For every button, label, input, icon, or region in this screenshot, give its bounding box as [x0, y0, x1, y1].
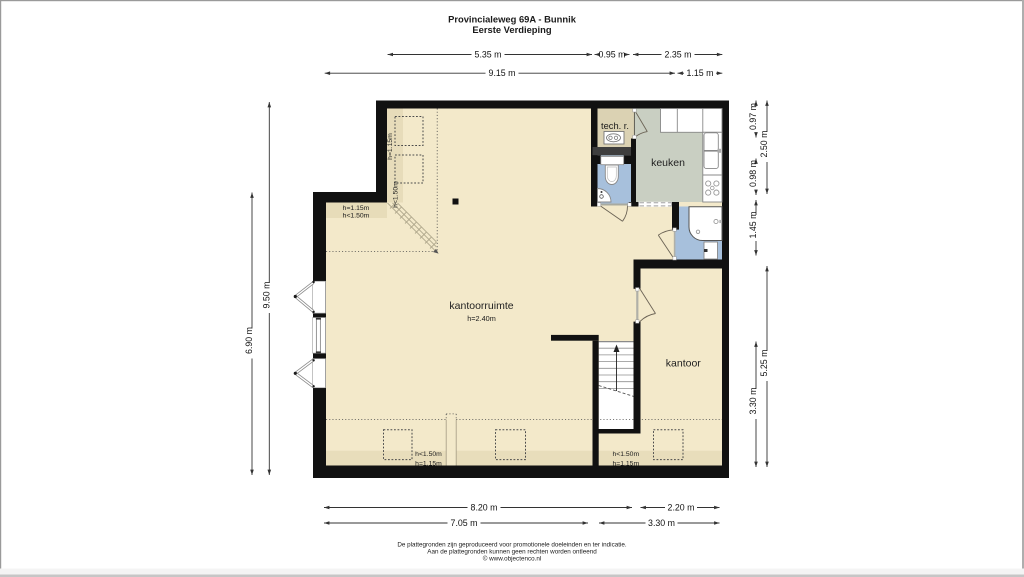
svg-text:h=1.15m: h=1.15m: [415, 460, 442, 467]
svg-text:Aan de plattegronden kunnen ge: Aan de plattegronden kunnen geen rechten…: [427, 549, 597, 556]
svg-text:2.50 m: 2.50 m: [759, 131, 769, 158]
svg-text:h<1.50m: h<1.50m: [612, 451, 639, 458]
svg-text:tech. r.: tech. r.: [601, 121, 629, 131]
svg-text:1.15 m: 1.15 m: [687, 68, 714, 78]
svg-text:h<1.50m: h<1.50m: [415, 451, 442, 458]
svg-text:0.95 m: 0.95 m: [599, 50, 626, 60]
svg-text:3.30 m: 3.30 m: [748, 388, 758, 415]
svg-text:h=2.40m: h=2.40m: [467, 314, 496, 323]
svg-text:0.97 m: 0.97 m: [748, 103, 758, 130]
svg-text:h<1.50m: h<1.50m: [393, 181, 400, 208]
svg-text:h=1.15m: h=1.15m: [343, 205, 370, 212]
svg-text:7.05 m: 7.05 m: [451, 518, 478, 528]
svg-text:2.35 m: 2.35 m: [665, 50, 692, 60]
svg-text:h=1.15m: h=1.15m: [387, 133, 394, 160]
svg-text:9.50 m: 9.50 m: [261, 282, 271, 309]
svg-text:8.20 m: 8.20 m: [471, 503, 498, 513]
svg-text:2.20 m: 2.20 m: [668, 503, 695, 513]
svg-text:3.30 m: 3.30 m: [648, 518, 675, 528]
svg-text:5.25 m: 5.25 m: [759, 350, 769, 377]
svg-text:Eerste Verdieping: Eerste Verdieping: [472, 24, 551, 35]
svg-text:© www.objectenco.nl: © www.objectenco.nl: [483, 555, 542, 563]
svg-text:keuken: keuken: [651, 157, 685, 169]
svg-text:h<1.50m: h<1.50m: [343, 212, 370, 219]
svg-text:De plattegronden zijn geproduc: De plattegronden zijn geproduceerd voor …: [397, 541, 627, 548]
svg-text:5.35 m: 5.35 m: [475, 50, 502, 60]
svg-text:kantoorruimte: kantoorruimte: [449, 300, 513, 312]
svg-text:1.45 m: 1.45 m: [748, 212, 758, 239]
svg-text:h=1.15m: h=1.15m: [612, 460, 639, 467]
svg-text:6.90 m: 6.90 m: [244, 327, 254, 354]
svg-text:0.98 m: 0.98 m: [748, 160, 758, 187]
svg-text:kantoor: kantoor: [666, 358, 702, 370]
svg-text:9.15 m: 9.15 m: [489, 68, 516, 78]
